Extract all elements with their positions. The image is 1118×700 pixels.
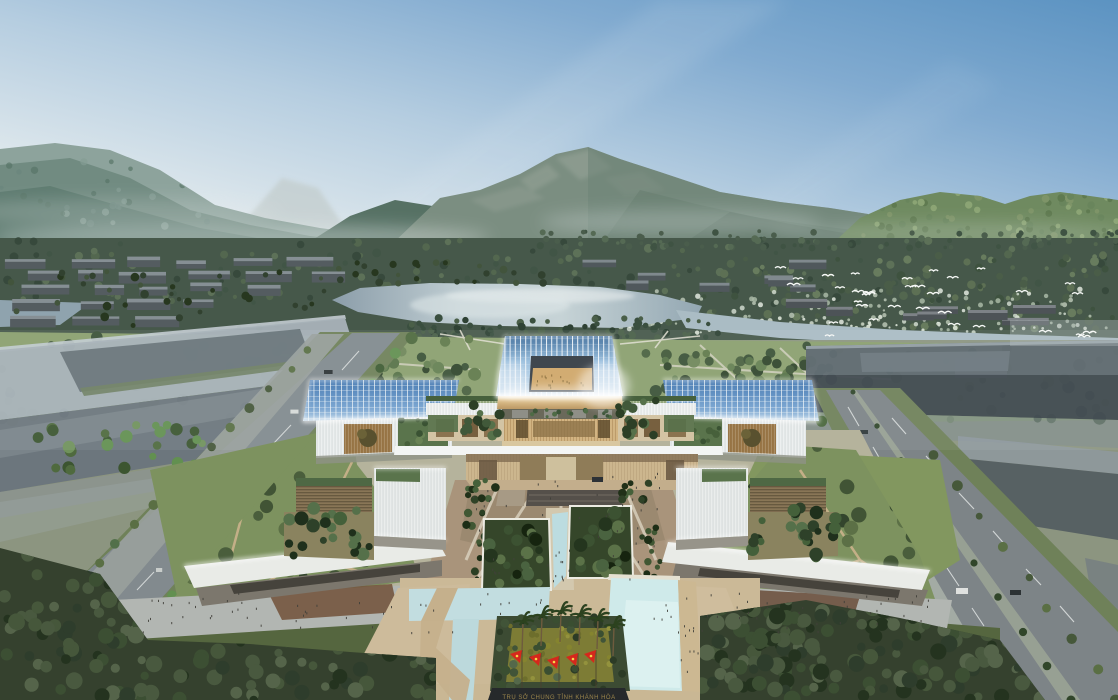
svg-text:TRỤ SỞ CHUNG TỈNH KHÁNH HÒA: TRỤ SỞ CHUNG TỈNH KHÁNH HÒA: [502, 694, 615, 700]
